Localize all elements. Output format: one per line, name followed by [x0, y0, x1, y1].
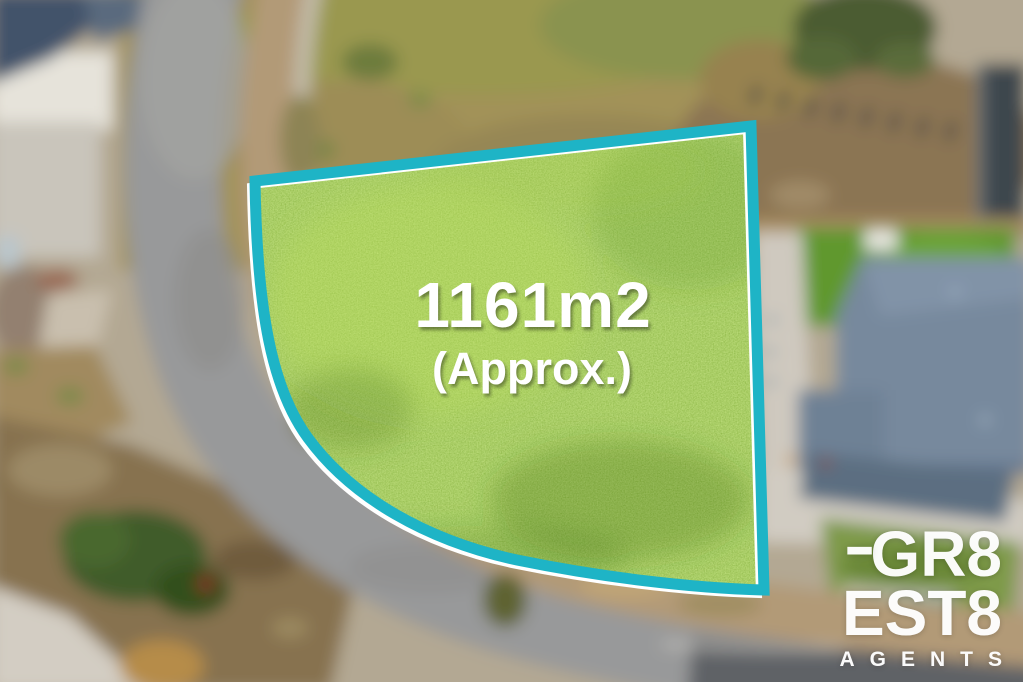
aerial-photo: 1161m2 (Approx.) -GR8 EST8 AGENTS [0, 0, 1023, 682]
lot-approx-label: (Approx.) [432, 343, 632, 395]
brand-logo: -GR8 EST8 AGENTS [839, 525, 1002, 669]
brand-dash: - [844, 517, 876, 576]
brand-line-gr8: -GR8 [839, 525, 1002, 584]
lot-area-label: 1161m2 [414, 268, 651, 342]
brand-line-agents: AGENTS [839, 650, 1017, 669]
brand-line-est8: EST8 [839, 584, 1002, 643]
